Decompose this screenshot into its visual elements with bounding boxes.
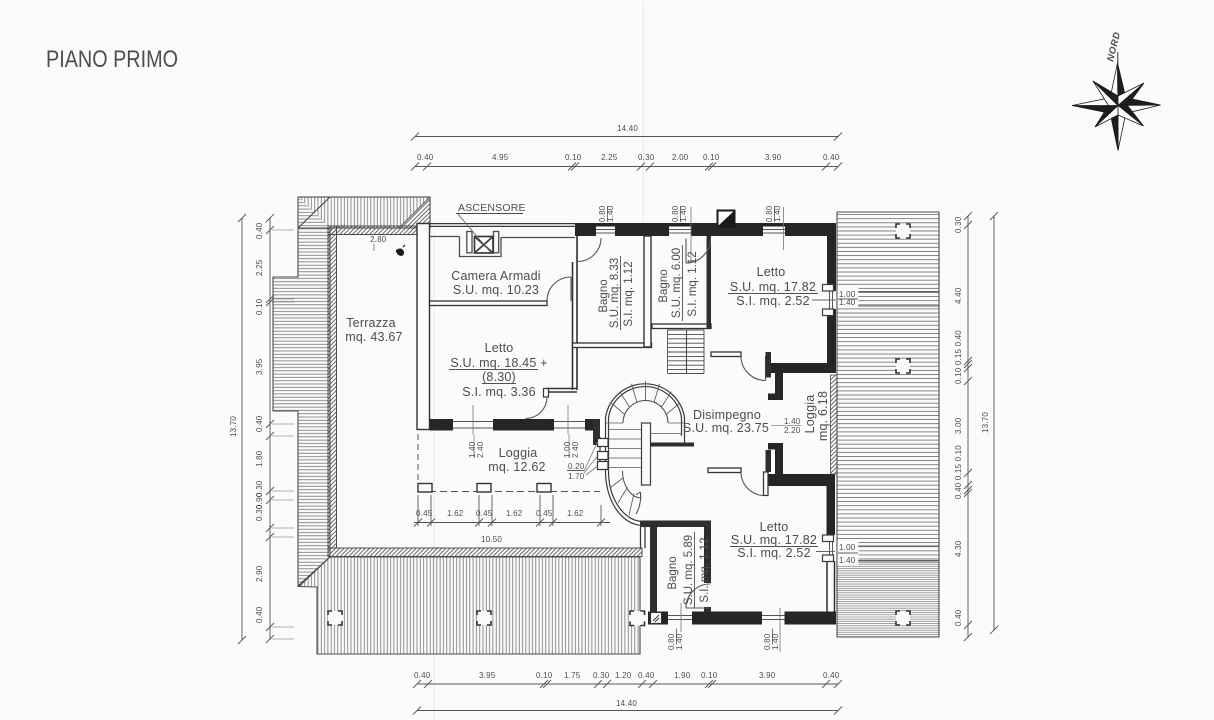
svg-text:0.40: 0.40 [823,153,840,162]
svg-text:0.40: 0.40 [255,606,264,623]
svg-text:0.40: 0.40 [823,671,840,680]
svg-text:10.50: 10.50 [481,535,502,544]
svg-text:0.20: 0.20 [568,462,585,471]
svg-text:0.40 0.15 0.10: 0.40 0.15 0.10 [954,445,963,499]
svg-text:1.40: 1.40 [675,633,684,650]
svg-text:3.90: 3.90 [759,671,776,680]
svg-text:0.30: 0.30 [593,671,610,680]
svg-text:1.20: 1.20 [615,671,632,680]
svg-text:1.40: 1.40 [606,205,615,222]
svg-text:2.40: 2.40 [571,441,580,458]
svg-text:1.62: 1.62 [506,509,523,518]
svg-text:0.45: 0.45 [536,509,553,518]
svg-text:S.U. mq. 17.82: S.U. mq. 17.82 [730,280,816,294]
svg-text:S.U. mq. 18.45 +: S.U. mq. 18.45 + [450,356,547,370]
svg-text:1.40: 1.40 [839,556,856,565]
svg-text:S.I. mq. 2.52: S.I. mq. 2.52 [737,546,810,560]
svg-text:0.40: 0.40 [414,671,431,680]
svg-text:0.10 0.15 0.40: 0.10 0.15 0.40 [954,330,963,384]
svg-text:13.70: 13.70 [981,412,990,433]
svg-text:0.40: 0.40 [255,415,264,432]
svg-text:0.30: 0.30 [638,153,655,162]
svg-text:0.10: 0.10 [255,298,264,315]
svg-text:S.I. mq. 3.36: S.I. mq. 3.36 [462,385,535,399]
svg-text:mq. 43.67: mq. 43.67 [345,330,402,344]
svg-text:S.I. mq. 1.12: S.I. mq. 1.12 [699,537,711,602]
svg-text:0.40: 0.40 [954,609,963,626]
svg-text:Bagno: Bagno [667,556,679,589]
svg-text:2.90: 2.90 [255,565,264,582]
svg-text:0.40: 0.40 [255,222,264,239]
svg-text:Loggia: Loggia [803,395,817,434]
svg-text:Letto: Letto [757,265,786,279]
svg-text:Terrazza: Terrazza [346,316,396,330]
svg-text:mq. 6.18: mq. 6.18 [816,391,830,441]
svg-text:Disimpegno: Disimpegno [693,408,761,422]
svg-text:1.75: 1.75 [564,671,581,680]
svg-text:2.20: 2.20 [784,426,801,435]
svg-text:3.90: 3.90 [765,153,782,162]
svg-text:0.10: 0.10 [703,153,720,162]
svg-text:4.95: 4.95 [492,153,509,162]
svg-text:S.I. mq. 1.12: S.I. mq. 1.12 [623,261,635,326]
svg-text:Letto: Letto [760,520,789,534]
svg-text:S.I. mq. 2.52: S.I. mq. 2.52 [736,294,809,308]
svg-text:1.00: 1.00 [839,543,856,552]
svg-text:2.25: 2.25 [601,153,618,162]
svg-text:(8.30): (8.30) [482,370,516,384]
svg-text:14.40: 14.40 [616,699,637,708]
svg-text:1.62: 1.62 [447,509,464,518]
svg-text:1.40: 1.40 [784,417,801,426]
svg-text:4.30: 4.30 [954,540,963,557]
svg-text:PIANO PRIMO: PIANO PRIMO [46,46,178,73]
svg-text:1.40: 1.40 [773,205,782,222]
svg-text:1.80: 1.80 [255,450,264,467]
svg-text:2.40: 2.40 [476,441,485,458]
svg-text:0.10: 0.10 [701,671,718,680]
svg-text:13.70: 13.70 [229,416,238,437]
svg-text:mq. 12.62: mq. 12.62 [488,460,545,474]
svg-text:1.40: 1.40 [771,633,780,650]
svg-text:1.70: 1.70 [568,472,585,481]
svg-text:0.40: 0.40 [417,153,434,162]
svg-text:2.25: 2.25 [255,259,264,276]
svg-text:S.I. mq. 1.12: S.I. mq. 1.12 [687,251,699,316]
svg-text:S.U. mq. 17.82: S.U. mq. 17.82 [731,533,817,547]
svg-text:S.U. mq. 6.00: S.U. mq. 6.00 [671,248,683,318]
svg-text:Bagno: Bagno [658,269,670,302]
svg-text:S.U. mq. 5.89: S.U. mq. 5.89 [683,535,695,605]
svg-text:S.U. mq. 23.75: S.U. mq. 23.75 [683,421,769,435]
svg-text:2.00: 2.00 [672,153,689,162]
svg-text:0.10: 0.10 [536,671,553,680]
svg-text:Camera Armadi: Camera Armadi [451,269,540,283]
svg-text:0.45: 0.45 [476,509,493,518]
svg-text:ASCENSORE: ASCENSORE [458,202,526,214]
svg-text:2.80: 2.80 [370,235,387,244]
svg-text:3.95: 3.95 [479,671,496,680]
svg-text:S.U. mq. 8.33: S.U. mq. 8.33 [609,258,621,328]
svg-text:3.00: 3.00 [954,417,963,434]
svg-text:Letto: Letto [485,341,514,355]
svg-text:1.40: 1.40 [679,205,688,222]
svg-text:0.40: 0.40 [638,671,655,680]
svg-text:1.62: 1.62 [567,509,584,518]
svg-text:0.30: 0.30 [255,504,264,521]
svg-text:Loggia: Loggia [499,446,538,460]
svg-text:14.40: 14.40 [617,124,638,133]
svg-text:1.90: 1.90 [674,671,691,680]
svg-text:0.30: 0.30 [954,216,963,233]
svg-text:S.U. mq. 10.23: S.U. mq. 10.23 [453,283,539,297]
svg-text:0.10: 0.10 [565,153,582,162]
svg-text:3.95: 3.95 [255,358,264,375]
svg-text:0.45: 0.45 [416,509,433,518]
svg-text:4.40: 4.40 [954,287,963,304]
